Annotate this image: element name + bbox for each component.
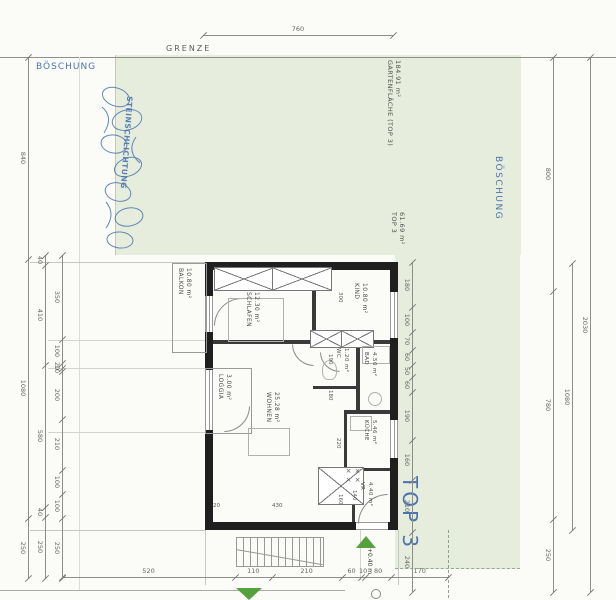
dim-page-right-a bbox=[553, 57, 554, 592]
kitchen-window bbox=[390, 420, 398, 458]
dim-page-right-b bbox=[572, 263, 573, 530]
grenze-label: GRENZE bbox=[166, 44, 211, 53]
boeschung-right-label: BÖSCHUNG bbox=[493, 156, 503, 220]
dim-label: 100 bbox=[53, 499, 60, 511]
room-area: 1.20 m² bbox=[342, 348, 350, 372]
room-area: 4.50 m² bbox=[370, 352, 378, 376]
unit-big-label: TOP 3 bbox=[398, 476, 422, 550]
room-name: KIND bbox=[352, 283, 360, 314]
survey-line bbox=[79, 57, 80, 590]
interior-dim-label: 220 bbox=[334, 438, 341, 449]
dim-label: 60 bbox=[347, 568, 355, 575]
dim-tick bbox=[59, 575, 66, 582]
room-name: SCHLAFEN bbox=[244, 292, 252, 327]
dim-label: 520 bbox=[142, 568, 154, 575]
room-label-balkon: BALKON 10.80 m² bbox=[176, 268, 192, 299]
garden-area-label: GARTENFLÄCHE (TOP 3) 184.91 m² bbox=[386, 60, 402, 146]
room-name: BAD bbox=[362, 352, 370, 376]
dim-label: 10 bbox=[359, 568, 367, 575]
unit-area-value: 61.69 m² bbox=[398, 212, 406, 245]
wardrobe-symbol-2 bbox=[272, 267, 332, 291]
dim-label: 210 bbox=[300, 568, 312, 575]
room-area: 10.80 m² bbox=[184, 268, 192, 299]
interior-dim-label: 160 bbox=[336, 494, 343, 505]
interior-dim-label: 300 bbox=[336, 292, 343, 303]
partition-kueche-left bbox=[344, 414, 347, 470]
dim-label: 240 bbox=[403, 556, 410, 568]
dim-label: 350 bbox=[53, 291, 60, 303]
extension-line-mid2 bbox=[48, 368, 205, 369]
room-name: KÜCHE bbox=[362, 420, 370, 444]
dim-top bbox=[203, 35, 393, 36]
garden-area-top bbox=[115, 55, 521, 255]
room-label-bad: BAD 4.50 m² bbox=[362, 352, 378, 376]
interior-dim-label: 430 bbox=[272, 503, 283, 510]
site-plan-sheet: BÖSCHUNG GRENZE BÖSCHUNG STEINSCHLICHTUN… bbox=[0, 0, 616, 600]
room-area: 12.30 m² bbox=[252, 292, 260, 327]
interior-dim-label: 20 bbox=[213, 503, 220, 510]
dim-label: 50 bbox=[403, 367, 410, 375]
room-name: WC bbox=[334, 348, 342, 372]
dim-label: 410 bbox=[36, 309, 43, 321]
dim-label: 800 bbox=[544, 168, 551, 180]
room-name: WOHNEN bbox=[264, 392, 272, 423]
room-name: BALKON bbox=[176, 268, 184, 299]
dim-label: 760 bbox=[292, 26, 304, 33]
partition-wc-bad bbox=[356, 344, 360, 410]
room-label-kind: KIND 10.80 m² bbox=[352, 283, 368, 314]
dim-tick bbox=[25, 575, 32, 582]
table-outline bbox=[248, 428, 290, 456]
dim-label: 250 bbox=[19, 542, 26, 554]
dim-left-mid bbox=[45, 255, 46, 578]
partition-bad-kueche bbox=[344, 410, 390, 414]
dim-tick bbox=[390, 32, 397, 39]
dim-label: 80 bbox=[374, 568, 382, 575]
dim-tick bbox=[42, 575, 49, 582]
room-label-wohnen: WOHNEN 25.28 m² bbox=[264, 392, 280, 423]
dim-tick bbox=[550, 589, 557, 596]
wardrobe-symbol-3 bbox=[310, 330, 343, 348]
dim-label: 190 bbox=[403, 410, 410, 422]
dim-label: 180 bbox=[403, 278, 410, 290]
entrance-marker-arrow bbox=[356, 536, 376, 548]
dim-label: 60 bbox=[403, 380, 410, 388]
garden-area-value: 184.91 m² bbox=[394, 60, 402, 146]
dim-label: 40 bbox=[36, 508, 43, 516]
survey-point-circle bbox=[371, 589, 381, 599]
dim-left-outer bbox=[28, 57, 29, 578]
dim-tick bbox=[569, 527, 576, 534]
interior-dim-label: 190 bbox=[326, 354, 333, 365]
dim-label: 60 bbox=[403, 353, 410, 361]
dim-label: 100 bbox=[53, 475, 60, 487]
dim-label: 200 bbox=[53, 389, 60, 401]
dashed-boundary-line bbox=[448, 530, 449, 598]
grenze-boundary-line bbox=[0, 57, 616, 58]
dim-label: 1080 bbox=[19, 380, 26, 397]
dim-label: 100 bbox=[403, 313, 410, 325]
dim-label: 110 bbox=[247, 568, 259, 575]
room-area: 25.28 m² bbox=[272, 392, 280, 423]
bedroom-door-arc bbox=[292, 344, 314, 366]
partition-wc-bottom bbox=[313, 386, 356, 389]
dim-label: 160 bbox=[403, 453, 410, 465]
burner: × bbox=[353, 467, 362, 476]
room-name: VR bbox=[358, 482, 366, 506]
bottom-reference-line bbox=[0, 590, 345, 591]
burner: × bbox=[344, 476, 353, 485]
unit-area-label: TOP 3 61.69 m² bbox=[390, 212, 406, 245]
washbasin-outline bbox=[368, 392, 382, 406]
dim-label: 70 bbox=[403, 337, 410, 345]
room-area: 4.40 m² bbox=[366, 482, 374, 506]
extension-line-mid3 bbox=[48, 432, 205, 433]
room-label-loggia: LOGGIA 3.00 m² bbox=[216, 374, 232, 400]
boeschung-left-label: BÖSCHUNG bbox=[36, 62, 96, 72]
dim-tick bbox=[587, 589, 594, 596]
dim-label: 210 bbox=[403, 500, 410, 512]
dim-label: 580 bbox=[36, 430, 43, 442]
interior-dim-label: 140 bbox=[350, 490, 357, 501]
burner: × bbox=[344, 467, 353, 476]
dim-label: 250 bbox=[36, 541, 43, 553]
room-label-vr: VR 4.40 m² bbox=[358, 482, 374, 506]
dim-page-right-c bbox=[590, 57, 591, 592]
dim-label: 840 bbox=[19, 152, 26, 164]
garden-marker-arrow bbox=[236, 588, 262, 600]
dim-label: 2030 bbox=[581, 316, 588, 333]
interior-dim-label: 180 bbox=[326, 390, 333, 401]
room-area: 10.80 m² bbox=[360, 283, 368, 314]
dim-label: 40 bbox=[36, 256, 43, 264]
dim-label: 250 bbox=[544, 549, 551, 561]
dim-label: 210 bbox=[53, 438, 60, 450]
dim-plan-right bbox=[412, 262, 413, 592]
dim-label: 100 bbox=[53, 345, 60, 357]
dim-tick bbox=[409, 589, 416, 596]
room-area: 5.46 m² bbox=[370, 420, 378, 444]
garden-area-name: GARTENFLÄCHE (TOP 3) bbox=[386, 60, 394, 146]
dim-label: 1080 bbox=[563, 388, 570, 405]
kind-window bbox=[390, 292, 398, 338]
extension-line-bottom bbox=[30, 530, 205, 531]
dim-label: 170 bbox=[413, 568, 425, 575]
unit-name: TOP 3 bbox=[390, 212, 398, 245]
room-name: LOGGIA bbox=[216, 374, 224, 400]
dim-label: 780 bbox=[544, 399, 551, 411]
room-label-wc: WC 1.20 m² bbox=[334, 348, 350, 372]
room-area: 3.00 m² bbox=[224, 374, 232, 400]
wardrobe-symbol-1 bbox=[214, 267, 274, 291]
room-label-kueche: KÜCHE 5.46 m² bbox=[362, 420, 378, 444]
dim-label: 250 bbox=[53, 542, 60, 554]
room-label-schlafen: SCHLAFEN 12.30 m² bbox=[244, 292, 260, 327]
